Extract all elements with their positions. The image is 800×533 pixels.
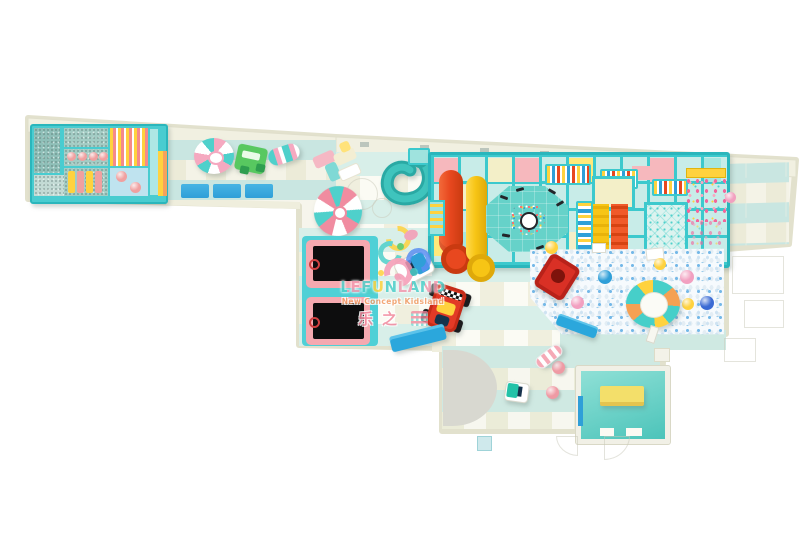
- structure-panel-pink: [515, 158, 539, 182]
- soft-ball-pink: [67, 152, 76, 161]
- left-structure-obstacle-rows: [110, 128, 148, 166]
- room-door-gap: [626, 428, 642, 436]
- pink-bollard: [552, 361, 565, 374]
- roller-pink: [77, 171, 84, 193]
- logo-shape-green-dot: [397, 243, 404, 250]
- toy-car-teal: [504, 381, 528, 402]
- sketch-outline: [732, 256, 784, 294]
- soft-ball-pink: [99, 152, 108, 161]
- watermark-logo: LEFUNLAND New Concept Kidsland 乐之: [334, 224, 452, 330]
- big-ball-pink: [680, 270, 694, 284]
- room-door-gap: [600, 428, 614, 436]
- trampoline-spring-ring: [309, 259, 320, 270]
- blue-mat: [245, 184, 273, 198]
- left-structure-mesh-block: [34, 128, 60, 173]
- big-ball-blue: [598, 270, 612, 284]
- left-structure-slide-orange: [163, 151, 167, 196]
- blue-mat: [181, 184, 209, 198]
- yellow-tube-slide: [466, 176, 487, 262]
- yellow-tube-slide-exit: [467, 254, 495, 282]
- pink-ball: [725, 192, 736, 203]
- soft-disc-pink: [130, 182, 141, 193]
- pink-bollard: [546, 386, 559, 399]
- soft-ball-pink: [78, 152, 87, 161]
- right-corner-wall: [726, 162, 789, 246]
- brand-name: LEFUNLAND: [334, 278, 452, 296]
- left-structure-mesh-deck: [64, 128, 108, 147]
- yellow-bench: [600, 386, 644, 406]
- sketch-outline: [724, 338, 756, 362]
- pink-ball-waterfall-sparse: [688, 218, 722, 252]
- indoor-playground-render: LEFUNLAND New Concept Kidsland 乐之: [0, 0, 800, 533]
- soft-ball-pink: [89, 152, 98, 161]
- umbrella-carousel-hub: [333, 206, 347, 220]
- logo-shape-yellow-dot: [378, 270, 384, 276]
- carousel-hub: [208, 151, 224, 165]
- wall-column-mark: [360, 142, 369, 147]
- room-blue-strip: [578, 396, 583, 426]
- roller-pink: [95, 171, 102, 193]
- kids-chair: [239, 165, 249, 175]
- big-ball-royal-blue: [700, 296, 714, 310]
- netting-platform: [644, 202, 688, 252]
- roller-yellow: [68, 171, 75, 193]
- trampoline-spring-ring: [309, 317, 320, 328]
- big-ball-yellow: [682, 298, 694, 310]
- big-ball-yellow: [545, 241, 558, 254]
- tiny-teal-square: [477, 436, 492, 451]
- spiral-slide-platform: [408, 148, 430, 165]
- pit-mat-white: [592, 243, 606, 253]
- brand-chinese-name: 乐之: [358, 308, 406, 329]
- kids-chair: [255, 163, 265, 173]
- rope-spinner: [520, 212, 538, 230]
- roller-obstacle-band: [545, 164, 591, 185]
- soft-disc-pink: [116, 171, 127, 182]
- brand-chinese-row: 乐之: [334, 308, 452, 329]
- blue-mat: [213, 184, 241, 198]
- sketch-outline: [744, 300, 784, 328]
- big-ball-pink: [571, 296, 584, 309]
- roller-yellow: [86, 171, 93, 193]
- wall-pillar: [654, 348, 670, 362]
- donut-float-center: [640, 292, 668, 318]
- structure-panel-cream: [488, 158, 512, 182]
- brand-mosaic-seal: [411, 311, 428, 326]
- pink-ball-waterfall-dense: [684, 176, 726, 222]
- logo-shape-teal-dot: [410, 268, 418, 276]
- roller-obstacle-band: [652, 179, 688, 196]
- brand-tagline: New Concept Kidsland: [334, 297, 452, 306]
- big-ball-yellow: [654, 258, 666, 270]
- left-structure-wave-pool: [110, 168, 148, 196]
- striped-crawl-panel: [576, 201, 593, 251]
- left-structure-side-panel: [150, 129, 158, 195]
